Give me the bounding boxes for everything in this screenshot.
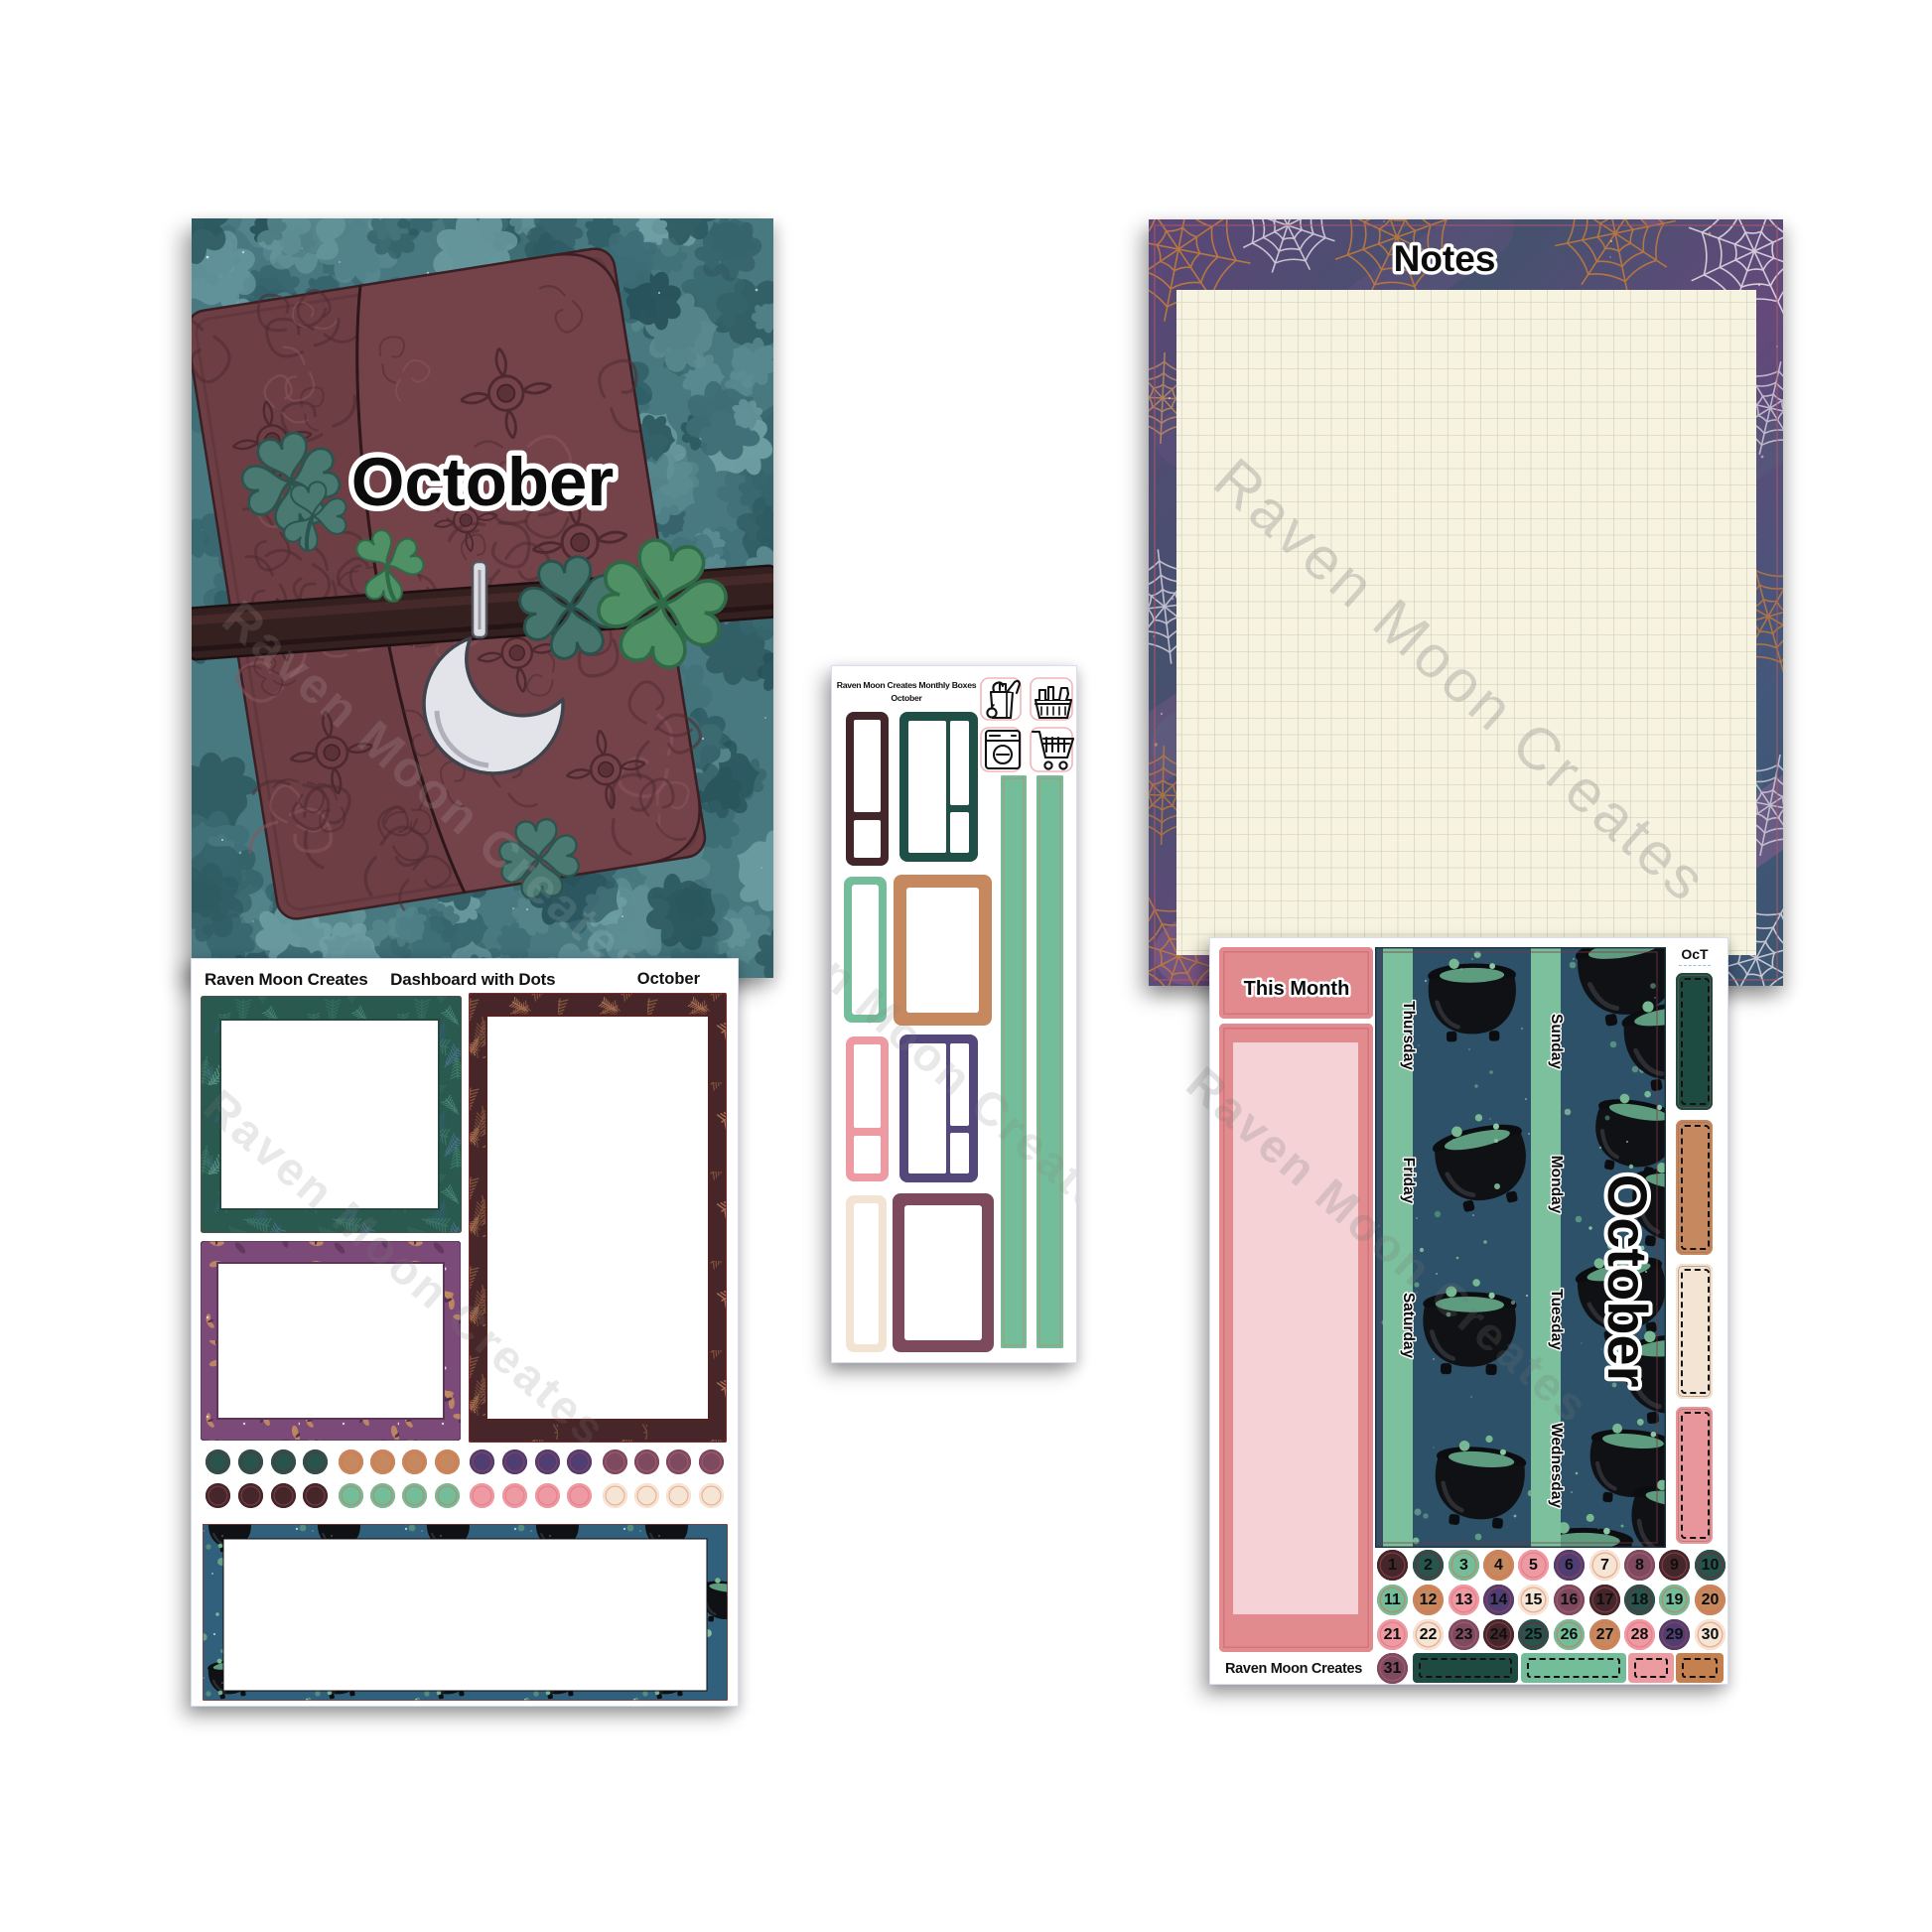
- svg-text:This Month: This Month: [1244, 978, 1350, 1000]
- svg-text:Tuesday: Tuesday: [1548, 1289, 1565, 1350]
- svg-text:Notes: Notes: [1394, 238, 1496, 279]
- svg-text:Friday: Friday: [1400, 1158, 1417, 1204]
- svg-text:October: October: [351, 444, 615, 520]
- svg-text:October: October: [1596, 1174, 1659, 1388]
- svg-text:Sunday: Sunday: [1548, 1014, 1565, 1069]
- svg-text:Thursday: Thursday: [1400, 1001, 1417, 1070]
- svg-text:Wednesday: Wednesday: [1548, 1423, 1565, 1508]
- svg-text:Monday: Monday: [1548, 1156, 1565, 1214]
